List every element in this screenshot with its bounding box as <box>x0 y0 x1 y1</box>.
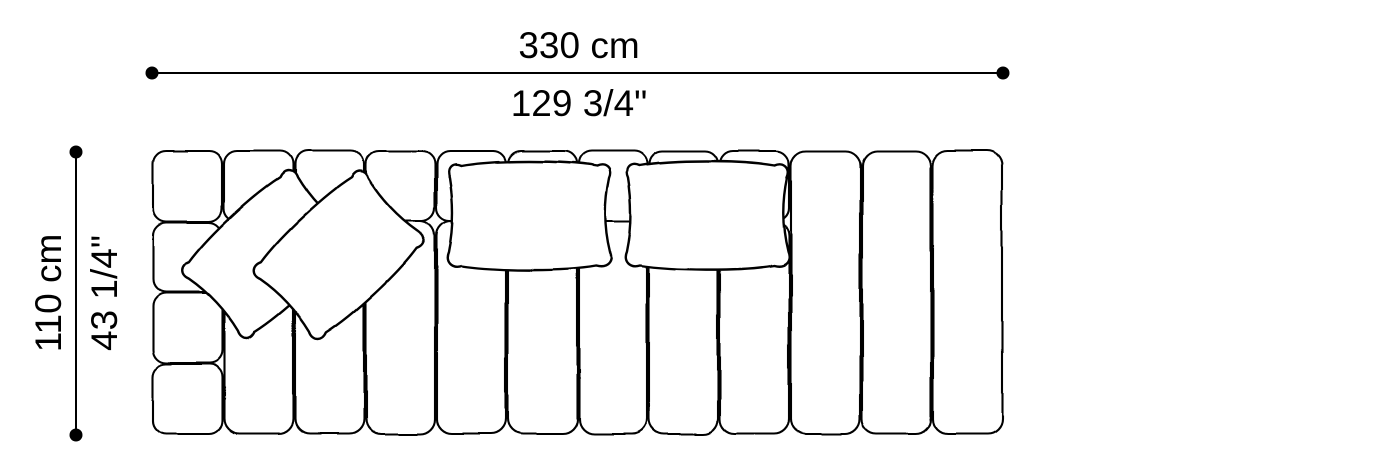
width-dimension: 330 cm 129 3/4" <box>146 25 1010 124</box>
width-label-metric: 330 cm <box>518 25 639 66</box>
sofa-top-view <box>153 151 1002 434</box>
depth-label-imperial: 43 1/4" <box>84 235 125 351</box>
dimension-endpoint-dot <box>70 146 83 159</box>
side-cushion <box>153 151 222 221</box>
seat-channel-full <box>791 151 860 434</box>
depth-dimension: 110 cm 43 1/4" <box>28 146 125 442</box>
side-cushion <box>153 364 222 434</box>
depth-label-metric: 110 cm <box>28 234 69 353</box>
throw-pillow-rect-right <box>626 161 789 270</box>
dimension-endpoint-dot <box>997 67 1010 80</box>
width-label-imperial: 129 3/4" <box>511 83 648 124</box>
seat-channel-full <box>862 151 931 434</box>
seat-channel-full <box>933 151 1002 434</box>
sofa-diagram-svg: 330 cm 129 3/4" 110 cm 43 1/4" <box>0 0 1400 474</box>
dimension-endpoint-dot <box>146 67 159 80</box>
throw-pillow-rect-left <box>448 162 611 271</box>
dimension-endpoint-dot <box>70 429 83 442</box>
side-cushion <box>153 293 222 363</box>
dimension-drawing: 330 cm 129 3/4" 110 cm 43 1/4" <box>0 0 1400 474</box>
